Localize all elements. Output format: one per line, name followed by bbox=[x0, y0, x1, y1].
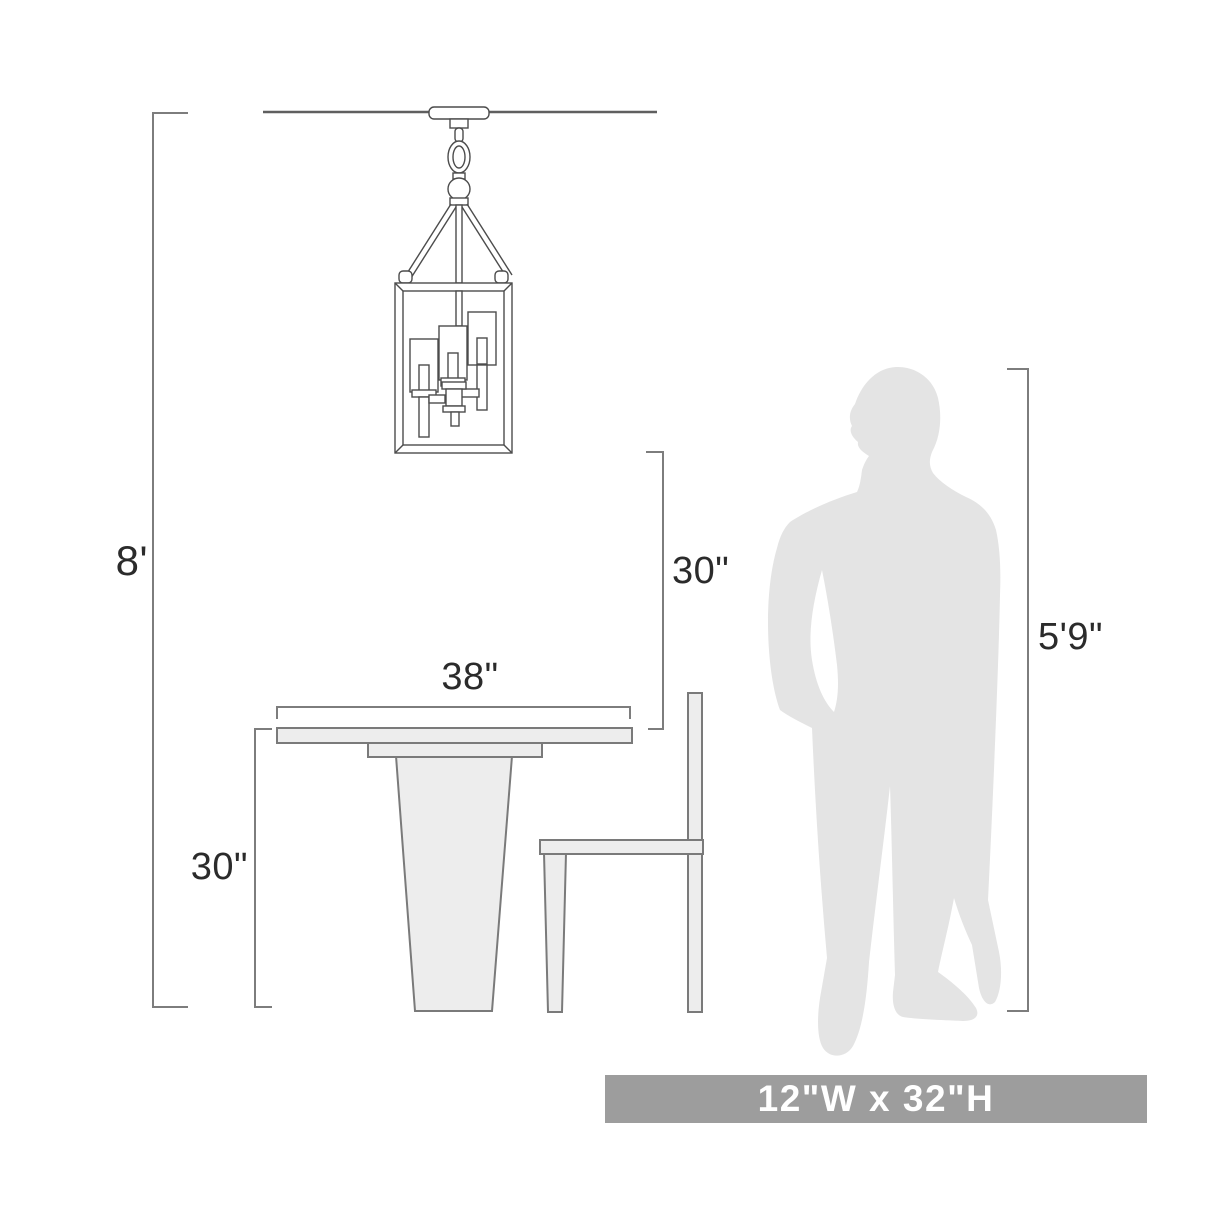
canopy-collar bbox=[450, 119, 468, 128]
candle-left bbox=[419, 365, 429, 391]
table-top bbox=[277, 728, 632, 743]
left-corner-loop bbox=[399, 271, 412, 283]
right-rod-inner bbox=[462, 207, 507, 278]
fixture-size-banner: 12"W x 32"H bbox=[605, 1075, 1147, 1123]
person-silhouette bbox=[768, 367, 1001, 1056]
person-height-label: 5'9" bbox=[1038, 618, 1103, 656]
candle-right bbox=[477, 338, 487, 364]
chain-link bbox=[455, 128, 463, 142]
fixture-size-label: 12"W x 32"H bbox=[758, 1078, 995, 1120]
arm-right bbox=[461, 389, 479, 397]
candle-center bbox=[448, 353, 458, 379]
pendant-light-drawing bbox=[395, 107, 512, 453]
center-stem bbox=[456, 205, 462, 283]
ceiling-height-label: 8' bbox=[84, 540, 148, 582]
dim-table-width-38in bbox=[277, 707, 630, 719]
left-rod bbox=[406, 204, 451, 275]
ceiling-canopy bbox=[429, 107, 489, 119]
diagram-line-art bbox=[0, 0, 1214, 1214]
hub-bottom-plate bbox=[443, 406, 465, 412]
interior-stem bbox=[456, 291, 462, 326]
page: { "diagram": { "subject": "pendant light… bbox=[0, 0, 1214, 1214]
table-width-label: 38" bbox=[403, 658, 537, 696]
table-height-label: 30" bbox=[176, 848, 248, 886]
hub-body bbox=[446, 389, 462, 406]
left-rod-inner bbox=[411, 207, 456, 278]
dim-clearance-30in bbox=[646, 452, 663, 729]
dim-person-height-5ft9 bbox=[1007, 369, 1028, 1011]
clearance-label: 30" bbox=[672, 552, 729, 590]
hub-finial bbox=[451, 412, 459, 426]
dim-table-height-30in bbox=[255, 729, 272, 1007]
dining-table bbox=[277, 728, 632, 1011]
scale-diagram: 8' 30" 38" 30" 5'9" 12"W x 32"H bbox=[0, 0, 1214, 1214]
hub-top-plate bbox=[442, 382, 466, 389]
table-pedestal bbox=[396, 756, 512, 1011]
table-apron bbox=[368, 743, 542, 757]
arm-left bbox=[429, 395, 445, 403]
ball-cap bbox=[450, 198, 468, 205]
chair-front-leg bbox=[544, 853, 566, 1012]
chair-seat bbox=[540, 840, 703, 854]
right-corner-loop bbox=[495, 271, 508, 283]
hanger-ball bbox=[448, 178, 470, 200]
right-rod bbox=[467, 204, 512, 275]
stem-right bbox=[477, 365, 487, 410]
stem-left bbox=[419, 397, 429, 437]
